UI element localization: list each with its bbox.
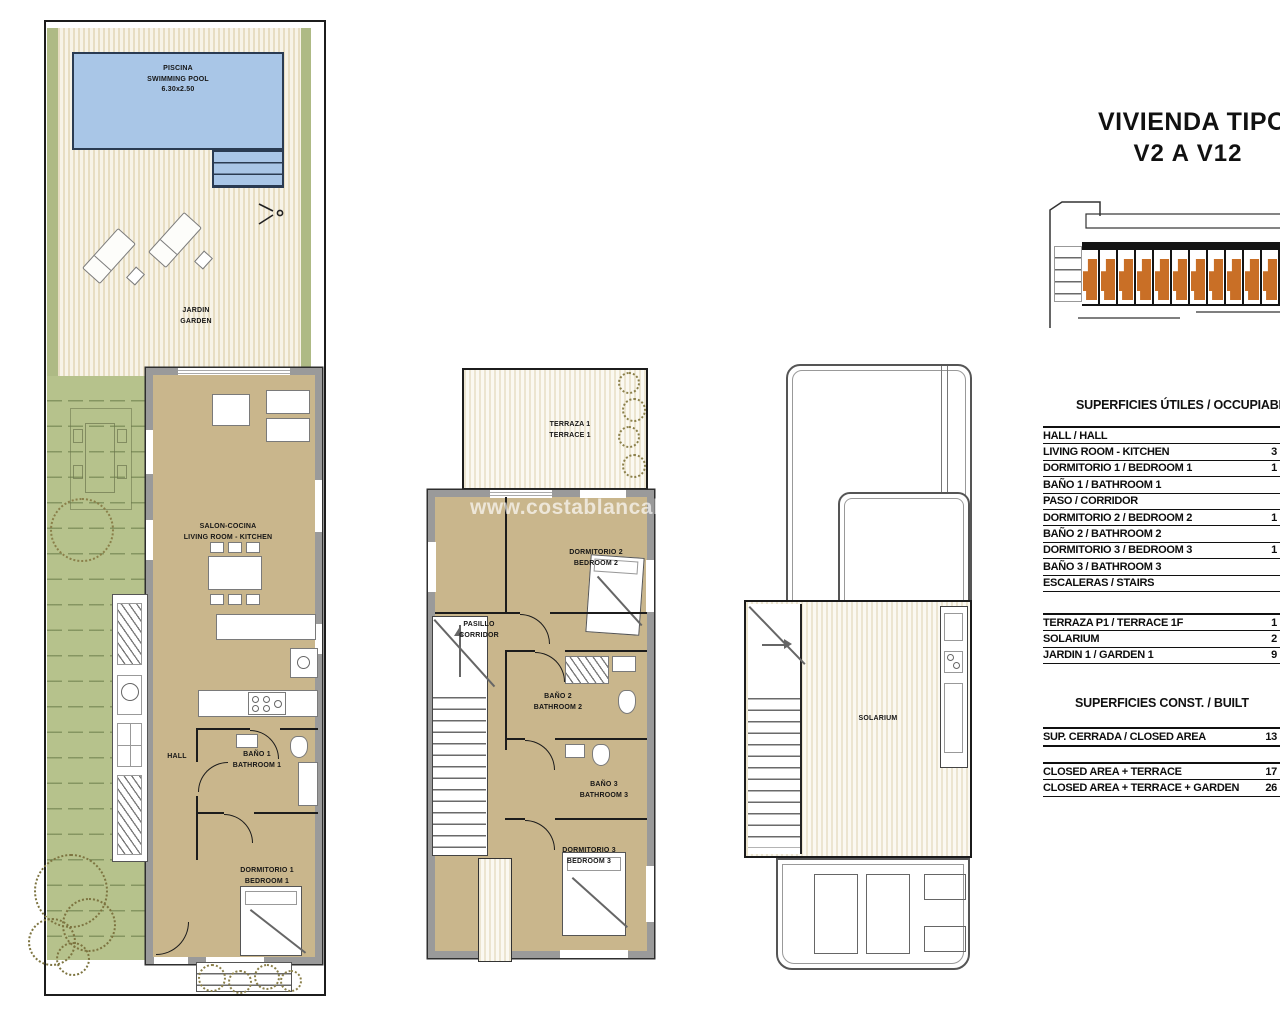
garden-strip-left xyxy=(47,28,58,376)
area-row: BAÑO 1 / BATHROOM 1 xyxy=(1043,477,1280,493)
area-row: PASO / CORRIDOR xyxy=(1043,494,1280,510)
key-plan-unit xyxy=(1262,250,1280,304)
utility-column xyxy=(112,594,148,862)
bed xyxy=(240,886,302,956)
area-label: BAÑO 1 / BATHROOM 1 xyxy=(1043,479,1161,491)
area-label: CLOSED AREA + TERRACE + GARDEN xyxy=(1043,782,1239,794)
window xyxy=(428,542,436,592)
stove xyxy=(248,692,286,715)
built-areas-table: SUP. CERRADA / CLOSED AREA 13 xyxy=(1043,727,1280,747)
key-plan-unit xyxy=(1136,250,1154,304)
area-row: DORMITORIO 2 / BEDROOM 2 1 xyxy=(1043,510,1280,526)
bush-icon xyxy=(228,970,252,994)
dining-chair xyxy=(210,594,224,605)
toilet xyxy=(618,690,636,714)
shower-icon xyxy=(256,200,286,228)
area-label: CLOSED AREA + TERRACE xyxy=(1043,766,1182,778)
sofa xyxy=(266,418,310,442)
area-row: TERRAZA P1 / TERRACE 1F 1 xyxy=(1043,615,1280,631)
pool-steps xyxy=(212,150,284,188)
key-plan-units-row xyxy=(1082,242,1280,306)
bed2-label: DORMITORIO 2 BEDROOM 2 xyxy=(558,548,634,569)
bath1-label: BAÑO 1 BATHROOM 1 xyxy=(225,750,289,771)
useful-areas-header: SUPERFICIES ÚTILES / OCCUPIABLE xyxy=(1076,398,1280,412)
bed3-label: DORMITORIO 3 BEDROOM 3 xyxy=(552,846,626,867)
area-value: 1 xyxy=(1271,617,1280,629)
toilet xyxy=(592,744,610,766)
window xyxy=(646,560,654,612)
area-value: 17 xyxy=(1265,766,1280,778)
area-row: DORMITORIO 1 / BEDROOM 1 1 xyxy=(1043,461,1280,477)
entry-door xyxy=(154,957,188,964)
kitchen-sink xyxy=(290,648,318,678)
key-plan-unit-highlight xyxy=(1119,259,1133,300)
key-plan-units xyxy=(1082,250,1280,304)
total-areas-table: CLOSED AREA + TERRACE 17 CLOSED AREA + T… xyxy=(1043,762,1280,797)
key-plan-unit-highlight xyxy=(1227,259,1241,300)
garden-strip-right xyxy=(301,28,311,376)
area-value: 1 xyxy=(1271,512,1280,524)
sofa xyxy=(266,390,310,414)
area-value: 13 xyxy=(1265,731,1280,743)
built-areas-header: SUPERFICIES CONST. / BUILT xyxy=(1075,696,1249,710)
hall-label: HALL xyxy=(157,752,197,763)
dining-table xyxy=(208,556,262,590)
area-row: SOLARIUM 2 xyxy=(1043,631,1280,647)
solarium-staircase xyxy=(748,604,802,854)
key-plan-unit-highlight xyxy=(1191,259,1205,300)
key-plan-unit-highlight xyxy=(1137,259,1151,300)
lower-roof-outline xyxy=(776,858,970,970)
dining-chair xyxy=(228,594,242,605)
window xyxy=(146,430,153,474)
key-plan-unit xyxy=(1244,250,1262,304)
area-label: SUP. CERRADA / CLOSED AREA xyxy=(1043,731,1206,743)
toilet xyxy=(290,736,308,758)
wardrobe xyxy=(565,656,609,684)
area-value: 26 xyxy=(1265,782,1280,794)
closet xyxy=(298,762,318,806)
solarium-plan: SOLARIUM xyxy=(740,358,990,1008)
area-label: PASO / CORRIDOR xyxy=(1043,495,1138,507)
area-value: 9 xyxy=(1271,649,1280,661)
bush-icon xyxy=(254,964,280,990)
terrace1-label: TERRAZA 1 TERRACE 1 xyxy=(520,420,620,441)
bush-icon xyxy=(280,970,302,992)
area-row: CLOSED AREA + TERRACE 17 xyxy=(1043,764,1280,780)
area-row: HALL / HALL xyxy=(1043,428,1280,444)
area-row: BAÑO 3 / BATHROOM 3 xyxy=(1043,559,1280,575)
sliding-door xyxy=(178,368,290,375)
useful-areas-table: HALL / HALL LIVING ROOM - KITCHEN 3 DORM… xyxy=(1043,426,1280,592)
staircase xyxy=(432,616,488,856)
key-plan-unit-highlight xyxy=(1083,259,1097,300)
area-row: JARDIN 1 / GARDEN 1 9 xyxy=(1043,648,1280,664)
area-label: DORMITORIO 3 / BEDROOM 3 xyxy=(1043,544,1192,556)
kitchen-counter xyxy=(216,614,316,640)
area-label: DORMITORIO 2 / BEDROOM 2 xyxy=(1043,512,1192,524)
bush-icon xyxy=(50,498,114,562)
area-label: DORMITORIO 1 / BEDROOM 1 xyxy=(1043,462,1192,474)
area-row: ESCALERAS / STAIRS xyxy=(1043,576,1280,592)
area-label: HALL / HALL xyxy=(1043,430,1107,442)
bathroom-sink xyxy=(565,744,585,758)
ground-floor-plan: PISCINA SWIMMING POOL 6.30x2.50 JARDIN G… xyxy=(0,0,340,1024)
key-plan-unit xyxy=(1100,250,1118,304)
first-floor-plan: TERRAZA 1 TERRACE 1 PASILLO CORRIDOR DOR… xyxy=(420,360,670,980)
corridor-label: PASILLO CORRIDOR xyxy=(450,620,508,641)
window xyxy=(646,866,654,922)
bush-icon xyxy=(622,454,646,478)
bush-icon xyxy=(618,372,640,394)
area-row: CLOSED AREA + TERRACE + GARDEN 26 xyxy=(1043,780,1280,796)
bath3-label: BAÑO 3 BATHROOM 3 xyxy=(570,780,638,801)
key-plan-stairs xyxy=(1054,246,1082,302)
sheet-title: VIVIENDA TIPO xyxy=(1098,108,1280,137)
area-row: BAÑO 2 / BATHROOM 2 xyxy=(1043,526,1280,542)
solarium-kitchenette xyxy=(940,606,968,768)
key-plan-unit-highlight xyxy=(1173,259,1187,300)
watermark: www.costablancaho xyxy=(470,496,680,520)
area-value: 2 xyxy=(1271,633,1280,645)
window xyxy=(146,520,153,560)
area-label: SOLARIUM xyxy=(1043,633,1099,645)
area-value: 1 xyxy=(1271,544,1280,556)
bathroom-sink xyxy=(612,656,636,672)
armchair xyxy=(212,394,250,426)
outdoor-table xyxy=(70,408,132,510)
pool-label: PISCINA SWIMMING POOL 6.30x2.50 xyxy=(118,64,238,96)
key-plan-unit-highlight xyxy=(1101,259,1115,300)
area-value: 3 xyxy=(1271,446,1280,458)
window xyxy=(315,480,322,532)
key-plan-unit xyxy=(1208,250,1226,304)
key-plan-unit-highlight xyxy=(1263,259,1277,300)
living-room-label: SALON-COCINA LIVING ROOM - KITCHEN xyxy=(168,522,288,543)
garden-label: JARDIN GARDEN xyxy=(156,306,236,327)
key-plan-unit xyxy=(1172,250,1190,304)
sheet-subtitle: V2 A V12 xyxy=(1098,140,1278,168)
bush-icon xyxy=(622,398,646,422)
bath2-label: BAÑO 2 BATHROOM 2 xyxy=(525,692,591,713)
area-row: SUP. CERRADA / CLOSED AREA 13 xyxy=(1043,729,1280,747)
area-row: DORMITORIO 3 / BEDROOM 3 1 xyxy=(1043,543,1280,559)
key-plan-unit xyxy=(1226,250,1244,304)
solarium-label: SOLARIUM xyxy=(840,714,916,725)
window xyxy=(560,950,628,958)
floor-plan-sheet: { "title": { "line1": "VIVIENDA TIPO", "… xyxy=(0,0,1280,1024)
key-plan-unit xyxy=(1118,250,1136,304)
key-plan-unit-highlight xyxy=(1155,259,1169,300)
key-plan-unit xyxy=(1154,250,1172,304)
bush-icon xyxy=(198,964,226,992)
area-label: JARDIN 1 / GARDEN 1 xyxy=(1043,649,1153,661)
dining-chair xyxy=(246,542,260,553)
area-label: TERRAZA P1 / TERRACE 1F xyxy=(1043,617,1183,629)
area-label: BAÑO 2 / BATHROOM 2 xyxy=(1043,528,1161,540)
key-plan-unit xyxy=(1190,250,1208,304)
dining-chair xyxy=(246,594,260,605)
outdoor-areas-table: TERRAZA P1 / TERRACE 1F 1 SOLARIUM 2 JAR… xyxy=(1043,613,1280,664)
stairs-hatch xyxy=(117,603,142,665)
area-row: LIVING ROOM - KITCHEN 3 xyxy=(1043,444,1280,460)
dining-chair xyxy=(210,542,224,553)
plant-icon xyxy=(56,942,90,976)
area-label: LIVING ROOM - KITCHEN xyxy=(1043,446,1169,458)
key-plan xyxy=(1040,194,1280,332)
area-label: ESCALERAS / STAIRS xyxy=(1043,577,1154,589)
area-label: BAÑO 3 / BATHROOM 3 xyxy=(1043,561,1161,573)
bed1-label: DORMITORIO 1 BEDROOM 1 xyxy=(235,866,299,887)
key-plan-unit-highlight xyxy=(1209,259,1223,300)
dining-chair xyxy=(228,542,242,553)
balcony xyxy=(478,858,512,962)
key-plan-unit xyxy=(1082,250,1100,304)
stairs-hatch xyxy=(117,775,142,855)
key-plan-unit-highlight xyxy=(1245,259,1259,300)
bush-icon xyxy=(618,426,640,448)
area-value: 1 xyxy=(1271,462,1280,474)
